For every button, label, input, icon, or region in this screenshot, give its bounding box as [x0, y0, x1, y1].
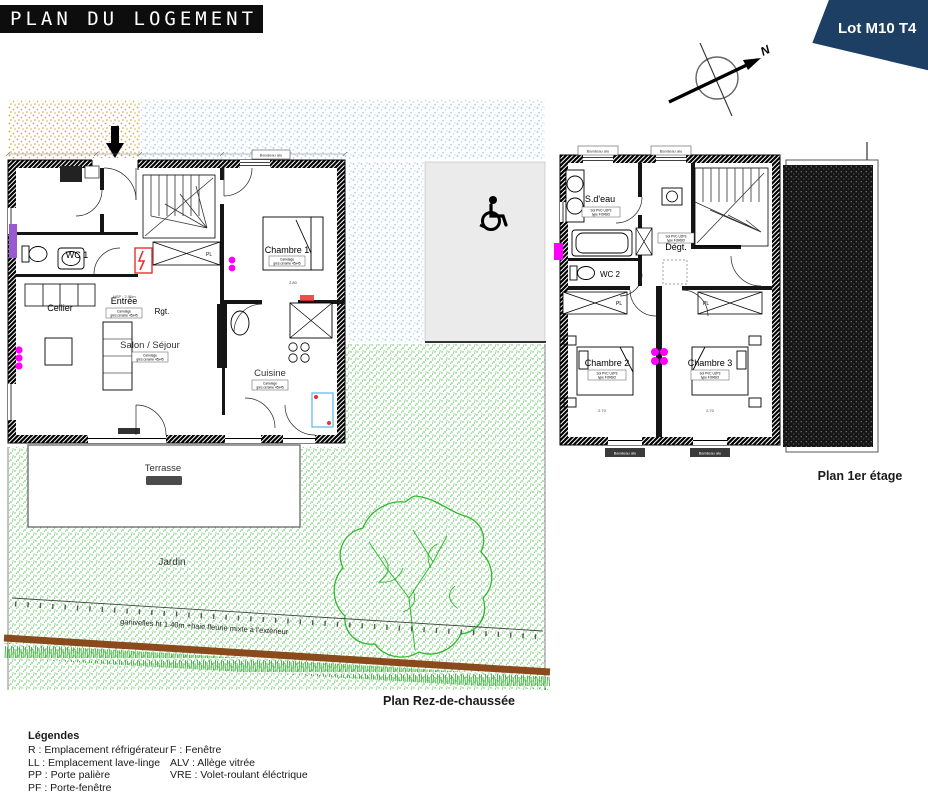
svg-text:type FORBO: type FORBO [701, 376, 720, 380]
room-label-jardin: Jardin [158, 557, 185, 568]
first-floor-plan: Bandeau alu Bandeau alu Bandeau alu Band… [550, 140, 928, 470]
gf-window-band-label: Bandeau alu [260, 153, 282, 158]
svg-text:PL: PL [616, 301, 622, 307]
utility-symbols-salon [15, 346, 22, 369]
floor-badge-chambre3: Sol PVC U2P3 type FORBO [691, 370, 729, 380]
north-arrow [669, 63, 751, 102]
room-label-chambre1: Chambre 1 [265, 245, 310, 255]
driveway-area [8, 100, 140, 160]
svg-text:Bandeau alu: Bandeau alu [614, 451, 636, 456]
plan-du-logement-page: PLAN DU LOGEMENT Lot M10 T4 N [0, 0, 928, 800]
dim-chambre1: 2.80 [289, 280, 298, 285]
room-label-terrasse: Terrasse [145, 463, 181, 474]
floor-badge-cuisine: Carrelage grès cérame 45x45 [252, 380, 288, 390]
radiator [118, 428, 140, 434]
room-label-cuisine: Cuisine [254, 368, 286, 379]
ff-washer-icon [662, 188, 682, 205]
gf-salon-bay-window [88, 435, 166, 443]
window-band-badges-bottom: Bandeau alu Bandeau alu [605, 448, 730, 457]
svg-text:grès cérame 45x45: grès cérame 45x45 [273, 262, 301, 266]
svg-text:type FORBO: type FORBO [598, 376, 617, 380]
svg-text:type FORBO: type FORBO [592, 213, 611, 217]
floor-badge-degt: Sol PVC U2P3 type FORBO [658, 233, 694, 243]
salon-table [45, 338, 72, 365]
washer-icon [60, 166, 82, 182]
legend: Légendes R : Emplacement réfrigérateur L… [28, 730, 308, 794]
room-label-rgt: Rgt. [155, 307, 170, 316]
svg-text:Bandeau alu: Bandeau alu [660, 149, 682, 154]
floor-badge-sdeau: Sol PVC U2P3 type FORBO [582, 207, 620, 217]
room-label-chambre2: Chambre 2 [585, 358, 630, 368]
svg-text:grès cérame 45x45: grès cérame 45x45 [110, 314, 138, 318]
floor-badge-salon: Carrelage grès cérame 45x45 [132, 352, 168, 362]
legend-item-ll: LL : Emplacement lave-linge [28, 757, 170, 769]
parking-space [425, 162, 545, 342]
floor-badge-entree: Carrelage grès cérame 45x45 [106, 308, 142, 318]
compass-icon: N [655, 36, 785, 122]
room-label-degt: Dégt. [665, 242, 687, 252]
svg-text:Bandeau alu: Bandeau alu [587, 149, 609, 154]
room-label-cellier: Cellier [47, 303, 73, 313]
page-title: PLAN DU LOGEMENT [0, 5, 263, 33]
floor-badge-chambre2: Sol PVC U2P3 type FORBO [588, 370, 626, 380]
gf-pl-closet: PL [153, 242, 220, 265]
legend-title: Légendes [28, 730, 308, 742]
svg-text:grès cérame 45x45: grès cérame 45x45 [256, 386, 284, 390]
room-label-chambre3: Chambre 3 [688, 358, 733, 368]
legend-item-alv: ALV : Allège vitrée [170, 757, 308, 769]
legend-item-pp: PP : Porte palière [28, 769, 170, 781]
terrace-finish-badge [146, 476, 182, 485]
room-label-salon: Salon / Séjour [120, 340, 180, 351]
dim-chambre3: 2.70 [706, 408, 715, 413]
ground-floor-plan: Bandeau alu [0, 98, 558, 713]
page-title-text: PLAN DU LOGEMENT [10, 8, 257, 30]
lot-label: Lot M10 T4 [838, 20, 916, 37]
floor-badge-chambre1: Carrelage grès cérame 45x45 [269, 256, 305, 266]
room-label-sdeau: S.d'eau [585, 194, 615, 204]
caption-first-floor: Plan 1er étage [810, 469, 910, 483]
walkway-top [140, 100, 545, 160]
legend-item-r: R : Emplacement réfrigérateur [28, 744, 170, 756]
electrical-panel-icon [135, 248, 152, 273]
dim-chambre2: 2.70 [598, 408, 607, 413]
north-label: N [758, 42, 772, 59]
caption-ground-floor: Plan Rez-de-chaussée [383, 694, 515, 708]
window-band-badges-top: Bandeau alu Bandeau alu [578, 146, 691, 155]
walkway-side [348, 162, 424, 342]
utility-panel-ff [554, 243, 563, 260]
svg-text:grès cérame 45x45: grès cérame 45x45 [136, 358, 164, 362]
ff-pl-closet-ch2: PL [563, 292, 627, 314]
lot-banner: Lot M10 T4 [810, 0, 928, 74]
room-label-wc2: WC 2 [600, 270, 621, 279]
legend-item-vre: VRE : Volet-roulant éléctrique [170, 769, 308, 781]
gf-chambre1-window [240, 160, 270, 168]
svg-text:Bandeau alu: Bandeau alu [699, 451, 721, 456]
gf-pl-label: PL [206, 252, 212, 258]
wc2-fixtures [570, 266, 595, 280]
hsp-note: HSP : 2.50m [113, 294, 136, 299]
utility-panel-left [9, 224, 17, 258]
room-label-wc1: WC 1 [66, 250, 89, 260]
legend-item-f: F : Fenêtre [170, 744, 308, 756]
svg-text:type FORBO: type FORBO [667, 239, 686, 243]
terrace: Terrasse [28, 445, 300, 527]
roof-area [783, 165, 873, 447]
legend-item-pf: PF : Porte-fenêtre [28, 782, 170, 794]
